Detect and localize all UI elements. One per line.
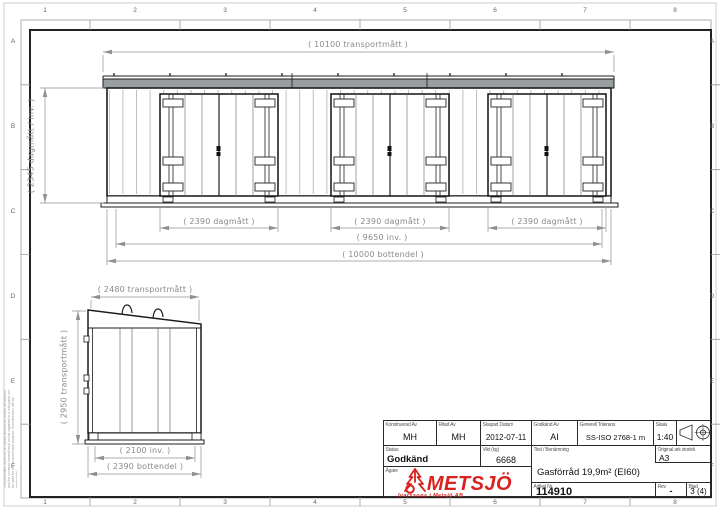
grid-col-label: 5 [395,7,415,15]
field-agare-logo: Ägare METSJÖ Ivarssons i Metsjö AB [383,466,532,497]
grid-row-label: A [702,38,720,46]
grid-col-label: 8 [665,7,685,15]
field-konstruerad: Konstruerad Av MH [383,420,437,446]
grid-col-label: 7 [575,7,595,15]
grid-col-label: 2 [125,7,145,15]
dim-front-door1: ( 2390 dagmått ) [183,217,254,226]
grid-row-label: E [702,378,720,386]
grid-row-label: C [702,208,720,216]
grid-col-label: 3 [215,499,235,507]
side-view [84,305,204,444]
grid-col-label: 1 [35,7,55,15]
field-status: Status Godkänd [383,445,481,467]
dim-front-door3: ( 2390 dagmått ) [511,217,582,226]
grid-row-label: D [3,293,23,301]
grid-col-label: 5 [395,499,415,507]
field-projection-symbol [676,420,711,446]
dim-front-inner: ( 9650 inv. ) [357,233,408,242]
grid-row-label: C [3,208,23,216]
dim-front-bottom: ( 10000 bottendel ) [342,250,424,259]
grid-col-label: 2 [125,499,145,507]
grid-row-label: B [3,123,23,131]
dim-side-transport-width: ( 2480 transportmått ) [98,285,193,294]
grid-row-label: B [702,123,720,131]
grid-row-label: A [3,38,23,46]
dim-front-height: ( 2345 dagmått / inv. ) [27,99,36,194]
field-skapad-datum: Skapad Datum 2012-07-11 [480,420,532,446]
field-skala: Skala 1:40 [653,420,677,446]
field-artikel-nr: Artikel Nr 114910 [531,482,656,497]
grid-col-label: 1 [35,499,55,507]
dim-front-door2: ( 2390 dagmått ) [354,217,425,226]
field-tolerans: Generell Tolerans SS-ISO 2768-1 m [577,420,654,446]
dim-front-transport: ( 10100 transportmått ) [308,40,408,49]
grid-col-label: 6 [485,499,505,507]
metsjo-logo: METSJÖ Ivarssons i Metsjö AB [384,471,531,496]
grid-col-label: 4 [305,499,325,507]
logo-name: METSJÖ [427,474,512,494]
grid-row-label: D [702,293,720,301]
grid-col-label: 4 [305,7,325,15]
grid-col-label: 3 [215,7,235,15]
logo-subtitle: Ivarssons i Metsjö AB [398,493,463,499]
copyright-disclaimer: This document must not be copied without… [4,388,17,488]
grid-col-label: 6 [485,7,505,15]
drawing-sheet: 1 2 3 4 5 6 7 8 1 2 3 4 5 6 7 8 A B C D … [0,0,720,509]
dim-side-transport-height: ( 2950 transportmått ) [60,330,69,425]
field-blad: Blad 3 (4) [686,482,711,497]
field-rev: Rev - [655,482,687,497]
field-godkand-av: Godkänd Av AI [531,420,578,446]
dim-side-bottom: ( 2390 bottendel ) [107,462,183,471]
grid-col-label: 7 [575,499,595,507]
spruce-tree-logo-icon [403,468,427,494]
dim-side-inner: ( 2100 inv. ) [120,446,171,455]
front-view [101,73,618,207]
grid-row-label: E [3,378,23,386]
field-vikt: Vikt (kg) 6668 [480,445,532,467]
field-ritad: Ritad Av MH [436,420,481,446]
grid-col-label: 8 [665,499,685,507]
field-original-storlek: Original ark storlek A3 [655,445,711,463]
